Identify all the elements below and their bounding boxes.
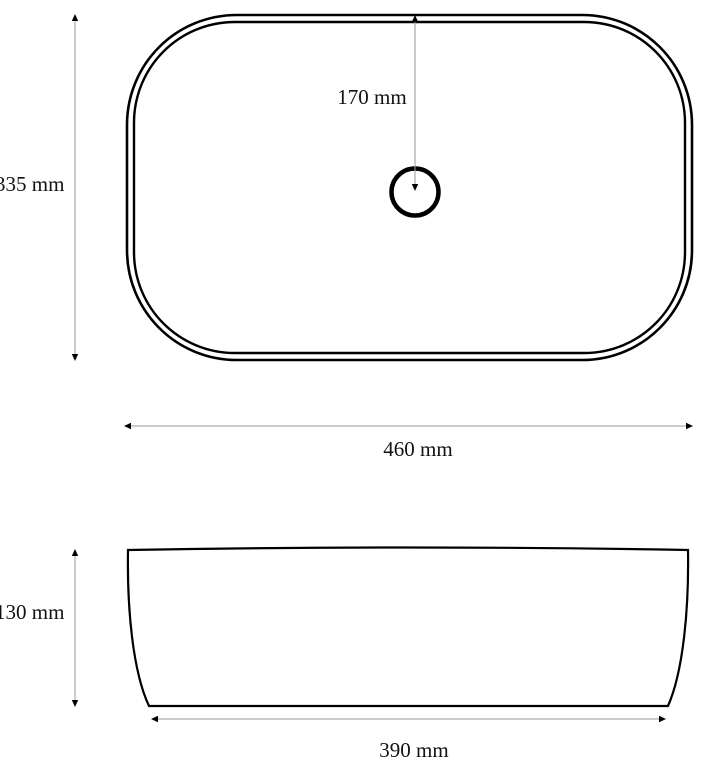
height-dimension-label: 130 mm bbox=[0, 600, 64, 624]
arrow-left-icon bbox=[151, 716, 158, 722]
arrow-up-icon bbox=[72, 14, 78, 21]
drain-offset-dimension: 170 mm bbox=[337, 15, 418, 191]
top-view-width-dimension: 460 mm bbox=[124, 423, 693, 461]
arrow-up-icon bbox=[72, 549, 78, 556]
top-view-inner-rim bbox=[134, 22, 685, 353]
top-view-outer-rim bbox=[127, 15, 692, 360]
drawing-canvas: 335 mm 170 mm 460 mm 130 mm bbox=[0, 0, 710, 770]
arrow-right-icon bbox=[659, 716, 666, 722]
arrow-right-icon bbox=[686, 423, 693, 429]
side-view-profile bbox=[128, 548, 688, 707]
side-view-height-dimension: 130 mm bbox=[0, 549, 78, 707]
arrow-down-icon bbox=[72, 354, 78, 361]
depth-dimension-label: 335 mm bbox=[0, 172, 64, 196]
arrow-down-icon bbox=[412, 184, 418, 191]
base-width-dimension-label: 390 mm bbox=[379, 738, 448, 762]
base-width-dimension: 390 mm bbox=[151, 716, 666, 762]
arrow-left-icon bbox=[124, 423, 131, 429]
width-dimension-label: 460 mm bbox=[383, 437, 452, 461]
basin-dimension-drawing: 335 mm 170 mm 460 mm 130 mm bbox=[0, 0, 710, 770]
top-view-depth-dimension: 335 mm bbox=[0, 14, 78, 361]
top-view bbox=[127, 15, 692, 360]
drain-offset-dimension-label: 170 mm bbox=[337, 85, 406, 109]
arrow-down-icon bbox=[72, 700, 78, 707]
side-view bbox=[128, 548, 688, 707]
